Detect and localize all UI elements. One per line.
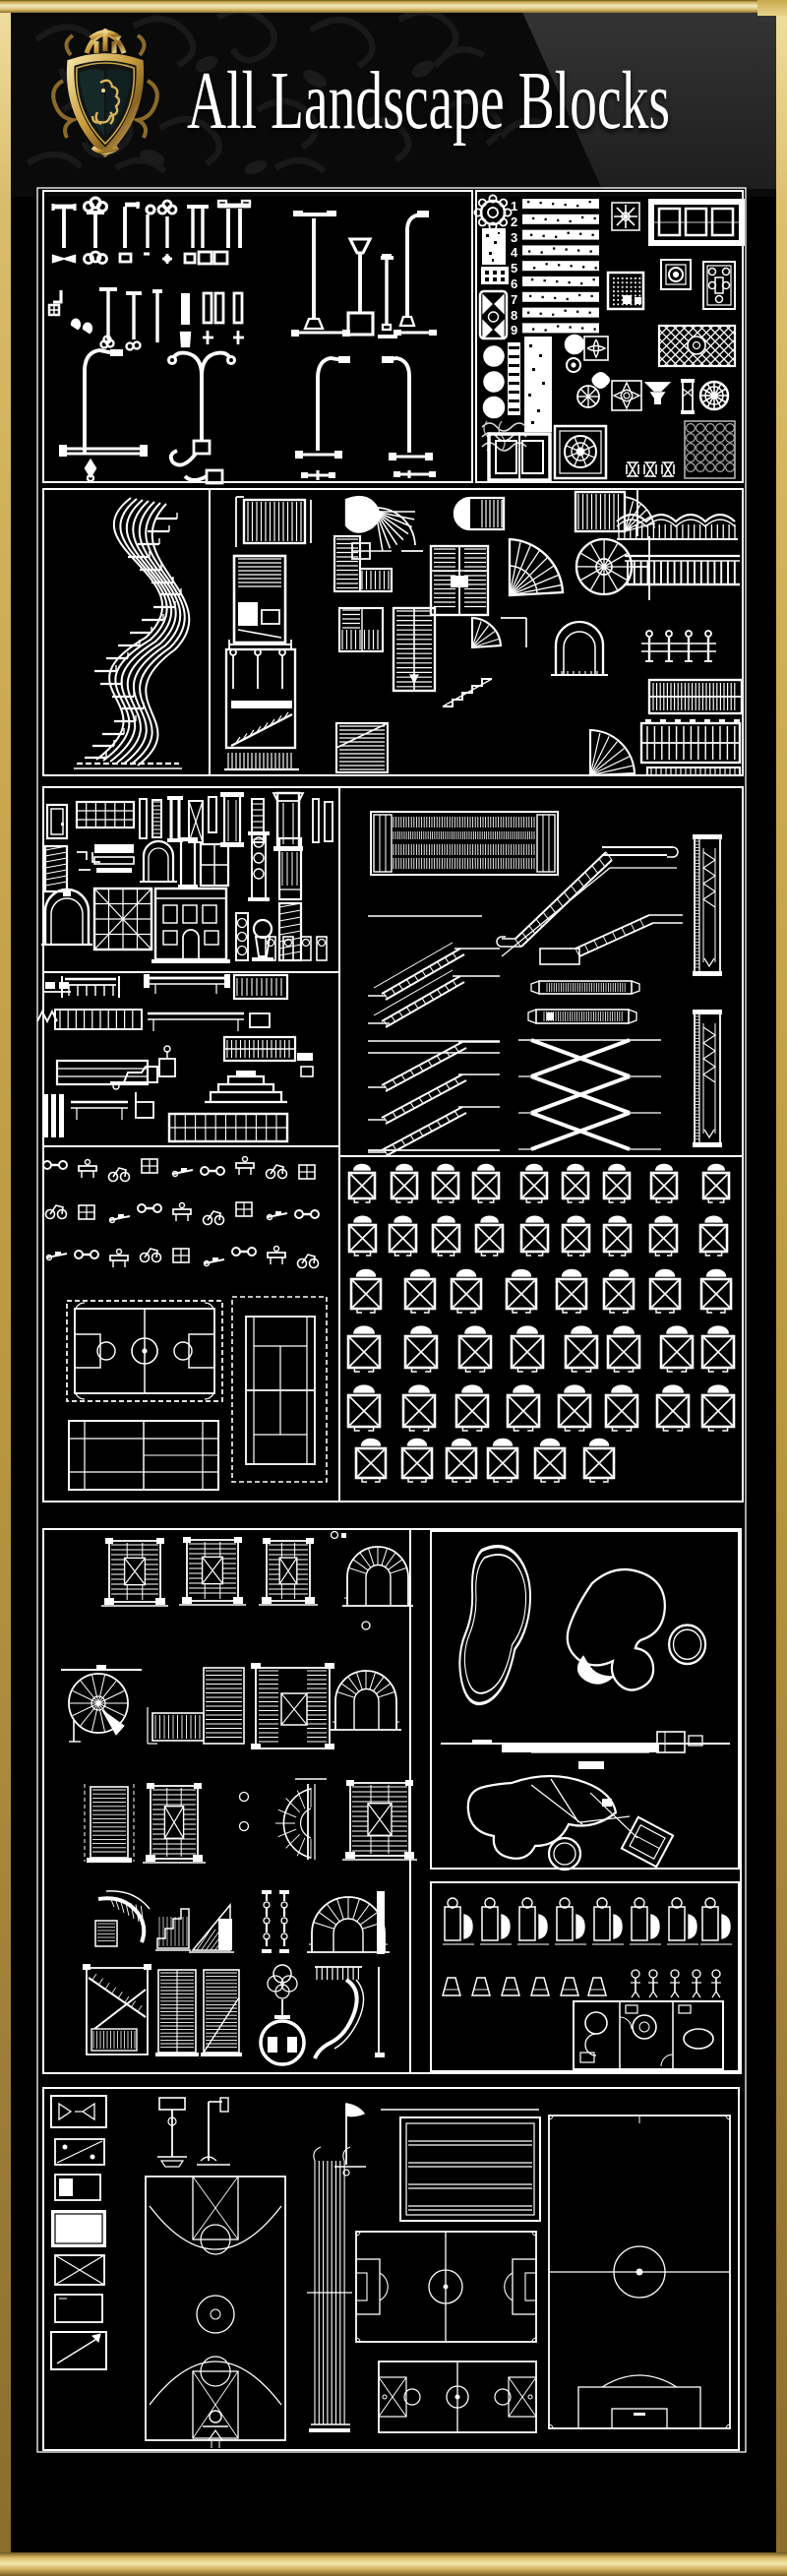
svg-text:6: 6 [511, 276, 517, 291]
svg-text:7: 7 [511, 292, 517, 307]
svg-text:3: 3 [511, 230, 517, 245]
svg-text:1: 1 [511, 199, 517, 214]
svg-text:9: 9 [511, 323, 517, 337]
svg-text:2: 2 [511, 215, 517, 229]
svg-text:8: 8 [511, 308, 517, 323]
svg-text:4: 4 [511, 245, 518, 260]
svg-text:5: 5 [511, 261, 517, 276]
